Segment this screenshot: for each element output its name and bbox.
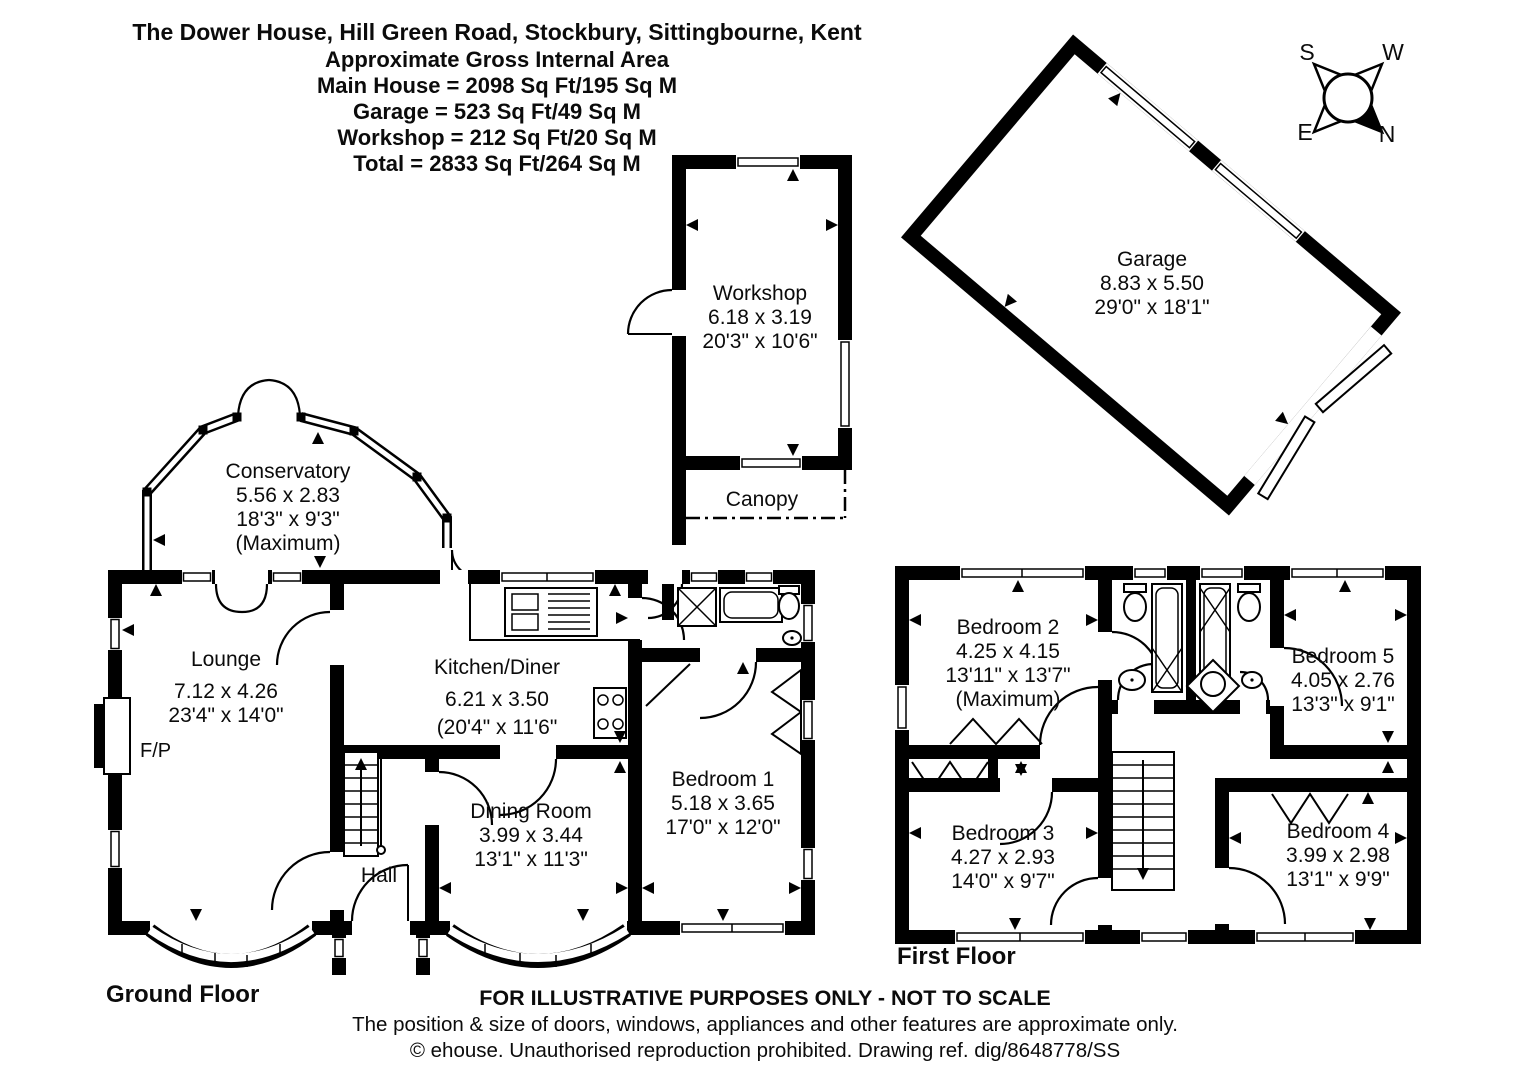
lounge-imperial: 23'4" x 14'0" [168, 704, 283, 727]
conservatory-name: Conservatory [226, 460, 351, 483]
door-opening [628, 598, 642, 640]
wall [988, 759, 998, 778]
door-opening [700, 648, 756, 662]
header-text: The Dower House, Hill Green Road, Stockb… [132, 19, 862, 176]
door-arc [269, 380, 300, 416]
conservatory-note: (Maximum) [236, 532, 341, 555]
header-garage: Garage = 523 Sq Ft/49 Sq M [353, 99, 641, 124]
bedroom5-name: Bedroom 5 [1292, 645, 1395, 668]
door-opening [1215, 868, 1229, 924]
bedroom4-name: Bedroom 4 [1287, 820, 1390, 843]
header-total: Total = 2833 Sq Ft/264 Sq M [353, 151, 641, 176]
compass-east: E [1297, 119, 1312, 145]
door-opening [1000, 778, 1052, 792]
window [111, 832, 119, 867]
compass-rose: S W E N [1297, 39, 1404, 147]
wall [1270, 745, 1421, 759]
ground-floor-plan: Conservatory 5.56 x 2.83 18'3" x 9'3" (M… [94, 380, 815, 1008]
lounge-bay-window [150, 930, 312, 967]
burner [613, 695, 623, 705]
newel-post [377, 846, 385, 854]
window [1142, 933, 1186, 941]
window [335, 940, 343, 957]
door-arc [238, 380, 269, 416]
window [1202, 569, 1242, 577]
bedroom3-imperial: 14'0" x 9'7" [951, 870, 1055, 893]
door-arc [628, 290, 672, 334]
ground-floor-label: Ground Floor [106, 981, 259, 1008]
floorplan-page: The Dower House, Hill Green Road, Stockb… [0, 0, 1528, 1080]
footer-disclaimer: FOR ILLUSTRATIVE PURPOSES ONLY - NOT TO … [479, 986, 1050, 1010]
door-opening [215, 570, 268, 584]
window [738, 158, 798, 166]
conservatory: Conservatory 5.56 x 2.83 18'3" x 9'3" (M… [143, 380, 481, 578]
header-workshop: Workshop = 212 Sq Ft/20 Sq M [337, 125, 656, 150]
post [297, 413, 306, 422]
compass-north: N [1379, 121, 1396, 147]
dining-bay-window [450, 930, 627, 967]
door-opening [425, 772, 439, 825]
sink-bowl [512, 594, 538, 610]
door-opening [1098, 878, 1112, 925]
toilet-cistern [1124, 584, 1146, 592]
door-opening [1240, 700, 1266, 714]
bedroom5-imperial: 13'3" x 9'1" [1291, 693, 1395, 716]
footer-approximate: The position & size of doors, windows, a… [352, 1013, 1178, 1036]
bedroom2-name: Bedroom 2 [957, 616, 1060, 639]
footer-text: FOR ILLUSTRATIVE PURPOSES ONLY - NOT TO … [352, 986, 1178, 1062]
header-main-house: Main House = 2098 Sq Ft/195 Sq M [317, 73, 677, 98]
compass-circle [1324, 74, 1372, 122]
bedroom1-name: Bedroom 1 [672, 768, 775, 791]
dining-name: Dining Room [470, 800, 591, 823]
kitchen-name: Kitchen/Diner [434, 656, 560, 679]
post [350, 427, 359, 436]
window [841, 342, 849, 426]
kitchen-imperial: (20'4" x 11'6" [437, 716, 558, 739]
door-opening [1098, 632, 1112, 680]
sink-drain [1250, 678, 1253, 681]
sink-drain [790, 636, 793, 639]
dining-metric: 3.99 x 3.44 [479, 824, 583, 847]
bedroom2-note: (Maximum) [956, 688, 1061, 711]
window [898, 687, 906, 728]
window [804, 850, 812, 879]
bedroom2-imperial: 13'11" x 13'7" [945, 664, 1070, 687]
door-opening [500, 745, 556, 759]
garage-name: Garage [1117, 248, 1187, 271]
post [443, 514, 452, 523]
bay-opening [150, 921, 312, 935]
door-opening [1040, 745, 1098, 759]
toilet-cistern [1238, 584, 1260, 592]
post [199, 426, 208, 435]
fireplace-recess [104, 698, 130, 774]
window [692, 573, 717, 581]
burner [598, 719, 608, 729]
conservatory-imperial: 18'3" x 9'3" [236, 508, 340, 531]
window [419, 940, 427, 957]
bedroom3-metric: 4.27 x 2.93 [951, 846, 1055, 869]
door-opening [1270, 648, 1284, 706]
lounge-metric: 7.12 x 4.26 [174, 680, 278, 703]
canopy-label: Canopy [726, 488, 799, 511]
compass-west: W [1382, 39, 1404, 65]
burner [598, 695, 608, 705]
window [274, 573, 301, 581]
canopy-area: Canopy [686, 470, 845, 518]
workshop-imperial: 20'3" x 10'6" [702, 330, 817, 353]
dining-imperial: 13'1" x 11'3" [474, 848, 588, 871]
garage-imperial: 29'0" x 18'1" [1094, 296, 1209, 319]
door-opening [330, 852, 344, 910]
wall [895, 566, 909, 944]
workshop-name: Workshop [713, 282, 807, 305]
door-opening [648, 570, 682, 584]
bedroom1-metric: 5.18 x 3.65 [671, 792, 775, 815]
workshop-metric: 6.18 x 3.19 [708, 306, 812, 329]
compass-south: S [1299, 39, 1314, 65]
bathtub-inner [724, 592, 778, 618]
footer-copyright: © ehouse. Unauthorised reproduction proh… [410, 1039, 1120, 1062]
door-opening [1118, 700, 1154, 714]
post [233, 413, 242, 422]
bathtub-inner [1156, 588, 1178, 688]
sink-drain [1130, 678, 1133, 681]
post [143, 488, 152, 497]
bedroom1-imperial: 17'0" x 12'0" [665, 816, 780, 839]
door-opening [672, 290, 686, 336]
wall [672, 470, 686, 545]
floorplan-canvas: The Dower House, Hill Green Road, Stockb… [0, 0, 1528, 1080]
window [111, 620, 119, 649]
first-floor-stairs [1112, 752, 1174, 890]
lounge-name: Lounge [191, 648, 261, 671]
burner [613, 719, 623, 729]
door-opening [352, 921, 410, 935]
bedroom3-name: Bedroom 3 [952, 822, 1055, 845]
garage-metric: 8.83 x 5.50 [1100, 272, 1204, 295]
window [747, 573, 772, 581]
bedroom4-imperial: 13'1" x 9'9" [1286, 868, 1390, 891]
window [1135, 569, 1165, 577]
window [804, 702, 812, 739]
toilet-icon [1238, 593, 1260, 621]
sink-bowl [512, 614, 538, 630]
window [804, 606, 812, 641]
kitchen-metric: 6.21 x 3.50 [445, 688, 549, 711]
sink-icon [1201, 672, 1225, 696]
window [184, 573, 211, 581]
ground-floor-stairs [344, 752, 385, 856]
door-opening [330, 610, 344, 665]
page-title: The Dower House, Hill Green Road, Stockb… [132, 19, 862, 45]
header-subtitle: Approximate Gross Internal Area [325, 47, 670, 72]
first-floor-plan: Bedroom 2 4.25 x 4.15 13'11" x 13'7" (Ma… [895, 566, 1421, 970]
wall [1215, 778, 1421, 792]
toilet-icon [779, 593, 799, 619]
bedroom2-metric: 4.25 x 4.15 [956, 640, 1060, 663]
bedroom4-metric: 3.99 x 2.98 [1286, 844, 1390, 867]
workshop-building: Canopy Workshop 6.18 x 3.19 20'3" x 10'6… [628, 155, 852, 545]
toilet-icon [1124, 593, 1146, 621]
hall-label: Hall [361, 864, 397, 887]
post [413, 473, 422, 482]
bedroom5-metric: 4.05 x 2.76 [1291, 669, 1395, 692]
first-floor-label: First Floor [897, 943, 1016, 970]
window [742, 459, 800, 467]
bay-opening [450, 921, 627, 935]
door-opening [440, 570, 468, 584]
fireplace-label: F/P [140, 740, 171, 762]
conservatory-metric: 5.56 x 2.83 [236, 484, 340, 507]
